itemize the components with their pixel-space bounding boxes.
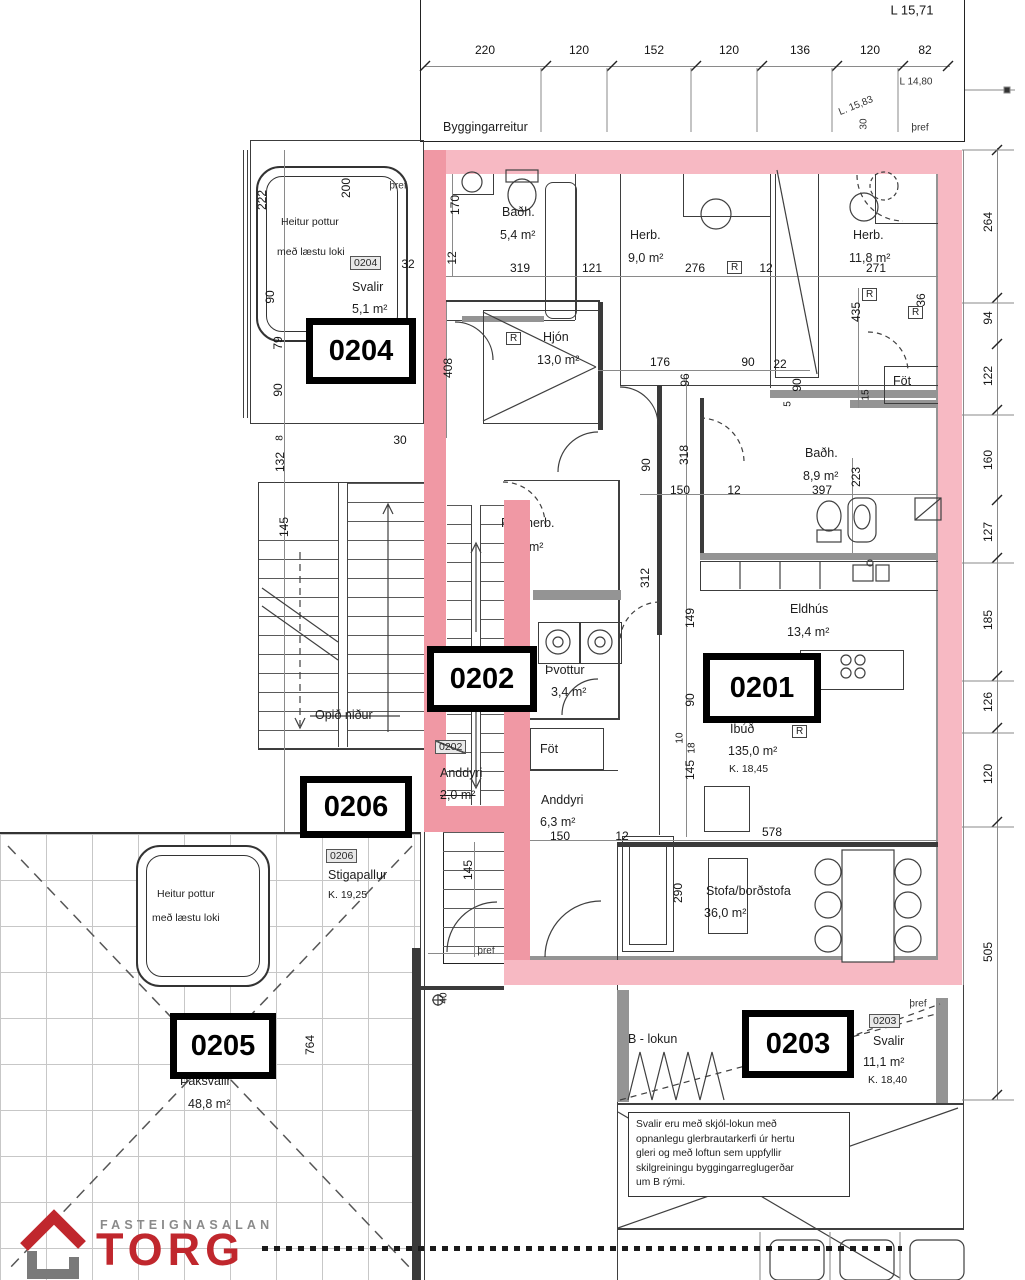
room-badh1-name: Baðh. — [502, 205, 535, 219]
dim-12b: 12 — [759, 261, 772, 275]
r-marker-hjon: R — [506, 332, 521, 345]
level-top-label: L 15,71 — [891, 3, 934, 18]
dotted-wall-line — [262, 1246, 902, 1251]
dim-764: 764 — [303, 1035, 317, 1055]
room-anddyri-strip-name: Anddyri — [440, 766, 482, 780]
room-stigapallur-level: K. 19,25 — [328, 889, 367, 901]
chain-185: 185 — [981, 610, 995, 630]
dim-36: 36 — [914, 293, 928, 306]
r-marker-ibud: R — [792, 725, 807, 738]
r-marker-36: R — [908, 306, 923, 319]
plot-dim-152: 152 — [644, 43, 664, 57]
dim-176: 176 — [650, 355, 670, 369]
dim-222: 222 — [255, 190, 269, 210]
dim-312: 312 — [638, 568, 652, 588]
unit-box-0205: 0205 — [170, 1013, 276, 1079]
opid-nidur-label: Opið niður — [315, 708, 373, 722]
chain-127: 127 — [981, 522, 995, 542]
unit-0206-id: 0206 — [324, 791, 389, 824]
tag-extra-32: 32 — [401, 257, 414, 271]
dim-397: 397 — [812, 483, 832, 497]
note-line-3: gleri og með loftun sem uppfyllir — [636, 1147, 842, 1162]
dim-145a: 145 — [683, 760, 697, 780]
thref-top: þref — [911, 123, 928, 134]
dim-15: 15 — [861, 389, 872, 400]
dim-145b: 145 — [277, 517, 291, 537]
plot-dim-120b: 120 — [719, 43, 739, 57]
plot-dim-220: 220 — [475, 43, 495, 57]
unit-box-0201: 0201 — [703, 653, 821, 723]
r-marker-435: R — [862, 288, 877, 301]
chain-122: 122 — [981, 366, 995, 386]
room-anddyri2-name: Anddyri — [541, 793, 583, 807]
note-line-4: skilgreiningu byggingarreglugerðar — [636, 1162, 842, 1177]
hot-tub-top-label1: Heitur pottur — [281, 216, 339, 228]
dim-5: 5 — [783, 401, 794, 407]
dim-96: 96 — [678, 373, 692, 386]
unit-0202-id: 0202 — [450, 663, 515, 696]
room-svalir0203-name: Svalir — [873, 1034, 904, 1048]
dim-90c: 90 — [639, 458, 653, 471]
dim-132: 132 — [273, 452, 287, 472]
dim-408: 408 — [441, 358, 455, 378]
dim-121: 121 — [582, 261, 602, 275]
unit-box-0204: 0204 — [306, 318, 416, 384]
room-hjon-area: 13,0 m² — [537, 353, 579, 367]
room-herb1-name: Herb. — [630, 228, 661, 242]
room-svalir0204-name: Svalir — [352, 280, 383, 294]
plot-dim-82: 82 — [918, 43, 931, 57]
note-line-1: Svalir eru með skjól-lokun með — [636, 1118, 842, 1133]
dim-145c: 145 — [461, 860, 475, 880]
unit-box-0206: 0206 — [300, 776, 412, 838]
unit-tag-0204: 0204 — [350, 256, 381, 270]
room-thvottur-area: 3,4 m² — [551, 685, 586, 699]
torg-house-icon — [14, 1205, 104, 1280]
room-stofa-area: 36,0 m² — [704, 906, 746, 920]
dim-318: 318 — [677, 445, 691, 465]
dim-319: 319 — [510, 261, 530, 275]
room-eldhus-name: Eldhús — [790, 602, 828, 616]
dim-149: 149 — [683, 608, 697, 628]
room-hjon-name: Hjón — [543, 330, 569, 344]
b-rymi-note: Svalir eru með skjól-lokun með opnanlegu… — [628, 1112, 850, 1197]
room-herb2-name: Herb. — [853, 228, 884, 242]
hot-tub-top-label2: með læstu loki — [277, 246, 345, 258]
plot-dim-30: 30 — [859, 118, 870, 129]
note-line-5: um B rými. — [636, 1176, 842, 1191]
unit-box-0202: 0202 — [427, 646, 537, 712]
dim-90a: 90 — [741, 355, 754, 369]
chain-505: 505 — [981, 942, 995, 962]
dim-578: 578 — [762, 825, 782, 839]
dim-200: 200 — [339, 178, 353, 198]
dim-276: 276 — [685, 261, 705, 275]
room-ibud-name: Íbúð — [730, 722, 754, 736]
dim-12a: 12 — [445, 251, 459, 264]
room-badh2-area: 8,9 m² — [803, 469, 838, 483]
dim-18: 18 — [687, 742, 698, 753]
dim-10: 10 — [675, 732, 686, 743]
room-anddyri2-area: 6,3 m² — [540, 815, 575, 829]
chain-94: 94 — [981, 311, 995, 324]
dim-271: 271 — [866, 261, 886, 275]
dim-90d: 90 — [683, 693, 697, 706]
chain-126: 126 — [981, 692, 995, 712]
dim-90f: 90 — [271, 383, 285, 396]
thref-balcony: þref — [389, 181, 406, 192]
dim-8: 8 — [275, 435, 286, 441]
hot-tub-terrace-label1: Heitur pottur — [157, 888, 215, 900]
room-badh1-area: 5,4 m² — [500, 228, 535, 242]
fot-label-topright: Föt — [893, 374, 911, 388]
room-eldhus-area: 13,4 m² — [787, 625, 829, 639]
dim-90e: 90 — [263, 290, 277, 303]
dim-12d: 12 — [615, 829, 628, 843]
dim-30b: 30 — [393, 433, 406, 447]
unit-0203-id: 0203 — [766, 1028, 831, 1061]
room-ibud-level: K. 18,45 — [729, 763, 768, 775]
dim-90b: 90 — [790, 378, 804, 391]
plot-label: Byggingarreitur — [443, 120, 528, 134]
dim-150a: 150 — [670, 483, 690, 497]
room-badh2-name: Baðh. — [805, 446, 838, 460]
unit-box-0203: 0203 — [742, 1010, 854, 1078]
dim-290: 290 — [671, 883, 685, 903]
logo-torg: TORG — [96, 1230, 245, 1271]
room-ibud-area: 135,0 m² — [728, 744, 777, 758]
room-herb1-area: 9,0 m² — [628, 251, 663, 265]
unit-tag-0202: 0202 — [435, 740, 466, 754]
r-marker-276: R — [727, 261, 742, 274]
note-line-2: opnanlegu glerbrautarkerfi úr hertu — [636, 1133, 842, 1148]
chain-264: 264 — [981, 212, 995, 232]
plot-dim-120c: 120 — [860, 43, 880, 57]
unit-tag-0206: 0206 — [326, 849, 357, 863]
chain-160: 160 — [981, 450, 995, 470]
unit-tag-0203: 0203 — [869, 1014, 900, 1028]
plan-linework — [0, 0, 1025, 1280]
room-thaksvalir-area: 48,8 m² — [188, 1097, 230, 1111]
dim-223: 223 — [849, 467, 863, 487]
plot-dim-120a: 120 — [569, 43, 589, 57]
unit-0204-id: 0204 — [329, 335, 394, 368]
dim-79: 79 — [271, 336, 285, 349]
dim-22: 22 — [773, 357, 786, 371]
room-svalir0203-area: 11,1 m² — [863, 1055, 904, 1069]
room-anddyri-strip-area: 2,0 m² — [440, 788, 475, 802]
dim-40: 40 — [439, 992, 450, 1003]
room-svalir0204-area: 5,1 m² — [352, 302, 387, 316]
room-stofa-name: Stofa/borðstofa — [706, 884, 791, 898]
floor-plan: Byggingarreitur 220 120 152 120 136 120 … — [0, 0, 1025, 1280]
dim-12c: 12 — [727, 483, 740, 497]
room-thvottur-name: Þvottur — [545, 663, 585, 677]
dim-435: 435 — [849, 302, 863, 322]
unit-0201-id: 0201 — [730, 672, 795, 705]
dim-150b: 150 — [550, 829, 570, 843]
room-svalir0203-level: K. 18,40 — [868, 1074, 907, 1086]
chain-120: 120 — [981, 764, 995, 784]
hot-tub-terrace-label2: með læstu loki — [152, 912, 220, 924]
room-stigapallur-name: Stigapallur — [328, 868, 387, 882]
level-a-label: L 14,80 — [900, 77, 933, 88]
thref-entry: þref — [477, 946, 494, 957]
plot-dim-136: 136 — [790, 43, 810, 57]
dim-170: 170 — [448, 195, 462, 215]
b-lokun-label: B - lokun — [628, 1032, 677, 1046]
thref-0203: þref — [909, 999, 926, 1010]
fot-label-mid: Föt — [540, 742, 558, 756]
unit-0205-id: 0205 — [191, 1030, 256, 1063]
